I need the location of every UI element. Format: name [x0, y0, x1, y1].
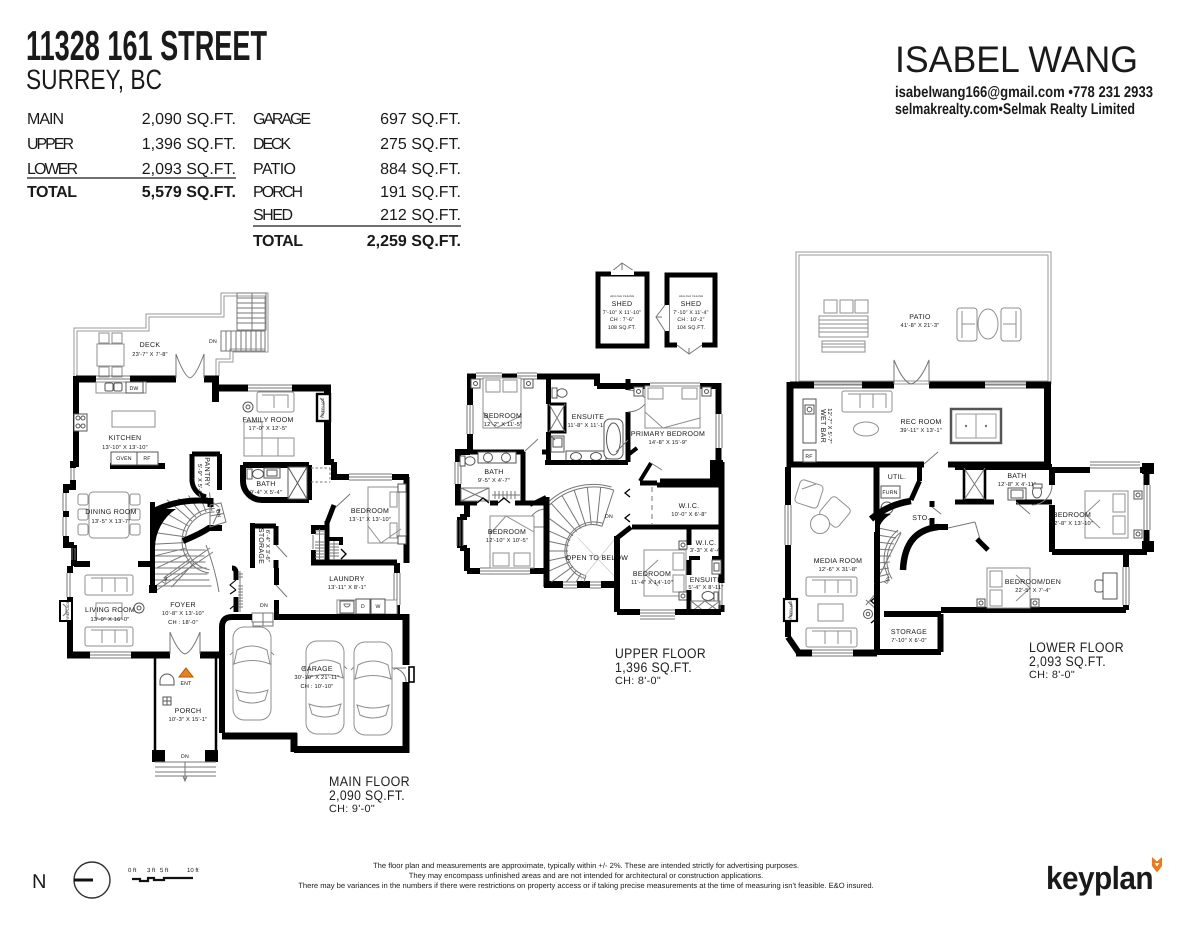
svg-text:OVEN: OVEN — [116, 456, 132, 462]
svg-text:SHED: SHED — [253, 207, 293, 224]
svg-text:SHED: SHED — [681, 301, 702, 308]
svg-text:DECK: DECK — [140, 342, 161, 349]
svg-text:GARAGE: GARAGE — [301, 666, 333, 673]
svg-text:10 ft: 10 ft — [187, 867, 199, 874]
svg-text:UPPER FLOOR: UPPER FLOOR — [615, 646, 706, 661]
svg-text:BEDROOM: BEDROOM — [633, 571, 671, 578]
svg-text:FIREPLACE: FIREPLACE — [66, 600, 70, 621]
svg-text:41'-8" X 21'-3": 41'-8" X 21'-3" — [901, 323, 940, 329]
svg-text:7'-10" X 6'-0": 7'-10" X 6'-0" — [891, 638, 927, 644]
svg-text:212 SQ.FT.: 212 SQ.FT. — [380, 207, 461, 224]
svg-text:N: N — [32, 871, 46, 893]
svg-text:23'-7" X 7'-8": 23'-7" X 7'-8" — [132, 352, 168, 358]
svg-text:13'-5" X 13'-7": 13'-5" X 13'-7" — [92, 519, 131, 525]
svg-text:W: W — [375, 604, 380, 610]
svg-text:The floor plan and measurement: The floor plan and measurements are appr… — [373, 861, 799, 870]
svg-text:MAIN: MAIN — [27, 111, 64, 128]
svg-text:SURREY, BC: SURREY, BC — [26, 64, 162, 95]
svg-text:PATIO: PATIO — [909, 314, 931, 321]
svg-text:FURN: FURN — [882, 490, 897, 496]
svg-text:BATH: BATH — [256, 481, 275, 488]
svg-text:13'-10" X 13'-10": 13'-10" X 13'-10" — [102, 445, 148, 451]
svg-text:TOTAL: TOTAL — [253, 233, 303, 250]
svg-text:13'-11" X 8'-1": 13'-11" X 8'-1" — [328, 585, 367, 591]
svg-text:7'-10" X 11'-4": 7'-10" X 11'-4" — [673, 310, 708, 316]
svg-text:CH : 7'-6": CH : 7'-6" — [610, 317, 634, 323]
svg-text:ENSUITE: ENSUITE — [572, 414, 604, 421]
svg-text:11'-4" X 14'-10": 11'-4" X 14'-10" — [631, 580, 673, 586]
svg-text:10'-3" X 15'-1": 10'-3" X 15'-1" — [169, 717, 208, 723]
svg-text:CH: 9'-0": CH: 9'-0" — [329, 803, 375, 815]
svg-text:30'-10" X 21'-11": 30'-10" X 21'-11" — [294, 675, 339, 681]
svg-text:PORCH: PORCH — [175, 708, 202, 715]
svg-text:3 ft: 3 ft — [147, 867, 156, 874]
svg-text:2,093 SQ.FT.: 2,093 SQ.FT. — [1029, 654, 1106, 669]
svg-text:LIVING ROOM: LIVING ROOM — [85, 607, 135, 614]
svg-text:W.I.C.: W.I.C. — [679, 503, 700, 510]
svg-text:22'-5" X 7'-4": 22'-5" X 7'-4" — [1015, 588, 1051, 594]
svg-text:2,259 SQ.FT.: 2,259 SQ.FT. — [367, 233, 461, 250]
svg-text:LAUNDRY: LAUNDRY — [329, 576, 364, 583]
svg-text:12'-6" X 31'-8": 12'-6" X 31'-8" — [819, 567, 858, 573]
svg-text:MEDIA ROOM: MEDIA ROOM — [814, 558, 863, 565]
svg-text:10'-8" X 13'-10": 10'-8" X 13'-10" — [162, 611, 204, 617]
svg-text:There may be variances in the: There may be variances in the numbers if… — [298, 881, 873, 890]
svg-text:CH: 8'-0": CH: 8'-0" — [615, 675, 661, 687]
svg-text:5 ft: 5 ft — [160, 867, 169, 874]
svg-text:keyplan: keyplan — [1046, 860, 1153, 896]
svg-text:DINING ROOM: DINING ROOM — [85, 509, 137, 516]
svg-text:BEDROOM: BEDROOM — [488, 529, 526, 536]
svg-text:10'-0" X 6'-8": 10'-0" X 6'-8" — [671, 512, 707, 518]
svg-text:STORAGE: STORAGE — [257, 528, 264, 564]
svg-text:WET BAR: WET BAR — [819, 409, 826, 443]
svg-text:DECK: DECK — [253, 136, 291, 153]
svg-text:GARAGE: GARAGE — [253, 111, 311, 128]
svg-text:CH: 8'-0": CH: 8'-0" — [1029, 669, 1075, 681]
svg-text:7'-10" X 11'-10": 7'-10" X 11'-10" — [603, 310, 641, 316]
svg-text:697 SQ.FT.: 697 SQ.FT. — [380, 111, 461, 128]
svg-text:DN: DN — [181, 754, 189, 760]
svg-text:VAULTED CEILING: VAULTED CEILING — [679, 295, 703, 298]
svg-text:191 SQ.FT.: 191 SQ.FT. — [380, 184, 461, 201]
svg-text:12'-8" X 4'-11": 12'-8" X 4'-11" — [998, 482, 1037, 488]
svg-text:DN: DN — [605, 514, 613, 520]
svg-text:W.I.C.: W.I.C. — [696, 540, 717, 547]
svg-text:SHED: SHED — [612, 301, 633, 308]
svg-text:108 SQ.FT.: 108 SQ.FT. — [608, 325, 636, 331]
svg-text:MAIN FLOOR: MAIN FLOOR — [329, 774, 410, 789]
svg-text:PATIO: PATIO — [253, 161, 296, 178]
svg-text:BEDROOM: BEDROOM — [351, 508, 389, 515]
svg-text:BEDROOM: BEDROOM — [484, 413, 522, 420]
svg-text:FIREPLACE: FIREPLACE — [789, 600, 793, 620]
svg-text:2,090 SQ.FT.: 2,090 SQ.FT. — [329, 788, 405, 803]
svg-text:CH : 10'-10": CH : 10'-10" — [300, 684, 333, 690]
svg-text:12'-7" X 5'-7": 12'-7" X 5'-7" — [826, 408, 832, 444]
svg-text:13'-1" X 13'-10": 13'-1" X 13'-10" — [349, 517, 391, 523]
svg-text:6'-4" X 3'-6": 6'-4" X 3'-6" — [264, 530, 270, 562]
svg-text:2,093 SQ.FT.: 2,093 SQ.FT. — [142, 161, 236, 178]
svg-text:BATH: BATH — [1007, 473, 1026, 480]
svg-text:PANTRY: PANTRY — [203, 457, 210, 487]
svg-text:They may encompass unfinished: They may encompass unfinished areas and … — [409, 871, 764, 880]
svg-text:0 ft: 0 ft — [128, 867, 137, 874]
svg-text:5'-9" X 5'-6": 5'-9" X 5'-6" — [196, 464, 202, 496]
svg-text:CH : 10'-2": CH : 10'-2" — [677, 317, 704, 323]
svg-text:FAMILY ROOM: FAMILY ROOM — [242, 417, 293, 424]
svg-text:1,396 SQ.FT.: 1,396 SQ.FT. — [142, 136, 236, 153]
svg-text:PRIMARY BEDROOM: PRIMARY BEDROOM — [631, 431, 705, 438]
svg-text:TOTAL: TOTAL — [27, 184, 77, 201]
svg-text:VAULTED CEILING: VAULTED CEILING — [610, 295, 634, 298]
svg-text:LOWER: LOWER — [27, 161, 78, 178]
svg-text:13'-0" X 16'-0": 13'-0" X 16'-0" — [91, 617, 130, 623]
svg-text:BATH: BATH — [484, 469, 503, 476]
svg-text:9'-5" X 4'-7": 9'-5" X 4'-7" — [478, 478, 510, 484]
svg-text:12'-8" X 13'-10": 12'-8" X 13'-10" — [1051, 521, 1093, 527]
svg-text:BEDROOM/DEN: BEDROOM/DEN — [1005, 578, 1061, 586]
svg-text:14'-8" X 15'-9": 14'-8" X 15'-9" — [649, 440, 688, 446]
svg-text:275 SQ.FT.: 275 SQ.FT. — [380, 136, 461, 153]
svg-text:UTIL.: UTIL. — [888, 474, 907, 481]
svg-text:LOWER FLOOR: LOWER FLOOR — [1029, 640, 1124, 655]
svg-text:RF: RF — [805, 454, 812, 460]
svg-text:D: D — [361, 604, 365, 610]
svg-text:REC ROOM: REC ROOM — [901, 419, 942, 426]
svg-text:11'-8" X 11'-11": 11'-8" X 11'-11" — [567, 423, 608, 429]
svg-text:FOYER: FOYER — [170, 602, 196, 609]
svg-text:11328 161 STREET: 11328 161 STREET — [26, 22, 267, 69]
svg-text:STO.: STO. — [912, 515, 929, 522]
svg-text:DW: DW — [129, 386, 138, 392]
svg-text:ENT: ENT — [181, 681, 193, 687]
svg-text:ENSUITE: ENSUITE — [690, 577, 722, 584]
svg-text:KITCHEN: KITCHEN — [109, 435, 142, 442]
svg-text:104 SQ.FT.: 104 SQ.FT. — [677, 325, 705, 331]
svg-text:BEDROOM: BEDROOM — [1053, 512, 1091, 519]
svg-text:ISABEL WANG: ISABEL WANG — [895, 39, 1138, 80]
svg-text:DN: DN — [209, 339, 217, 345]
svg-text:5'-4" X 8'-11": 5'-4" X 8'-11" — [688, 585, 723, 591]
svg-text:DN: DN — [260, 603, 268, 609]
svg-text:isabelwang166@gmail.com •778 2: isabelwang166@gmail.com •778 231 2933 — [895, 84, 1153, 101]
svg-text:3'-3" X 4'-4": 3'-3" X 4'-4" — [690, 548, 722, 554]
svg-text:FIREPLACE: FIREPLACE — [321, 397, 325, 418]
svg-text:1,396 SQ.FT.: 1,396 SQ.FT. — [615, 660, 692, 675]
svg-text:12'-2" X 11'-5": 12'-2" X 11'-5" — [484, 422, 523, 428]
svg-text:PORCH: PORCH — [253, 184, 303, 201]
svg-text:STORAGE: STORAGE — [891, 629, 927, 636]
svg-text:17'-0" X 12'-5": 17'-0" X 12'-5" — [249, 426, 288, 432]
svg-text:CH : 18'-0": CH : 18'-0" — [168, 620, 198, 626]
svg-text:39'-11" X 13'-1": 39'-11" X 13'-1" — [900, 428, 942, 434]
svg-text:12'-10" X 10'-5": 12'-10" X 10'-5" — [486, 538, 528, 544]
svg-text:5,579 SQ.FT.: 5,579 SQ.FT. — [142, 184, 236, 201]
svg-text:2,090 SQ.FT.: 2,090 SQ.FT. — [142, 111, 236, 128]
svg-text:UPPER: UPPER — [27, 136, 74, 153]
svg-text:RF: RF — [143, 456, 150, 462]
svg-text:9'-4" X 5'-4": 9'-4" X 5'-4" — [250, 490, 282, 496]
svg-text:884 SQ.FT.: 884 SQ.FT. — [380, 161, 461, 178]
svg-text:selmakrealty.com•Selmak Realty: selmakrealty.com•Selmak Realty Limited — [895, 101, 1135, 118]
